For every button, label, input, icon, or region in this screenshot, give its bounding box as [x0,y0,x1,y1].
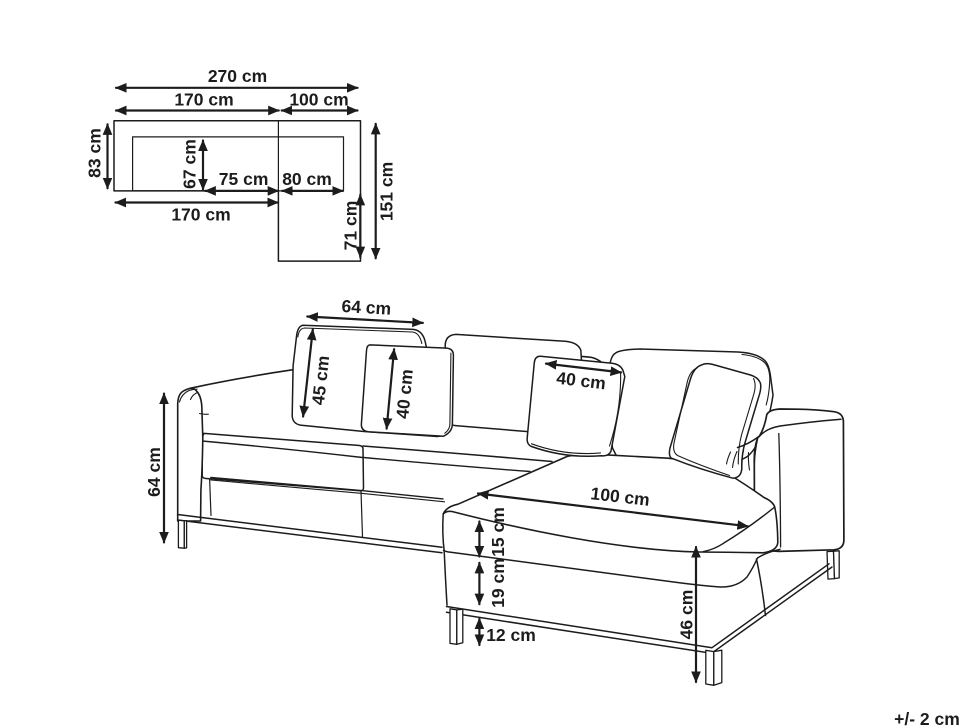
svg-text:19 cm: 19 cm [488,558,508,608]
svg-text:270 cm: 270 cm [208,66,267,86]
svg-text:75 cm: 75 cm [219,169,269,189]
svg-text:46 cm: 46 cm [676,590,696,640]
svg-text:15 cm: 15 cm [488,507,508,557]
svg-text:83 cm: 83 cm [85,128,105,178]
svg-text:64 cm: 64 cm [341,296,392,319]
svg-text:151 cm: 151 cm [377,162,397,221]
svg-text:170 cm: 170 cm [174,89,233,109]
svg-text:100 cm: 100 cm [289,89,348,109]
svg-text:12 cm: 12 cm [486,625,536,645]
svg-text:+/- 2 cm: +/- 2 cm [894,709,960,728]
svg-text:170 cm: 170 cm [171,205,230,225]
svg-text:80 cm: 80 cm [282,169,332,189]
svg-text:67 cm: 67 cm [180,139,200,189]
svg-text:71 cm: 71 cm [341,201,361,251]
svg-text:64 cm: 64 cm [144,447,164,497]
